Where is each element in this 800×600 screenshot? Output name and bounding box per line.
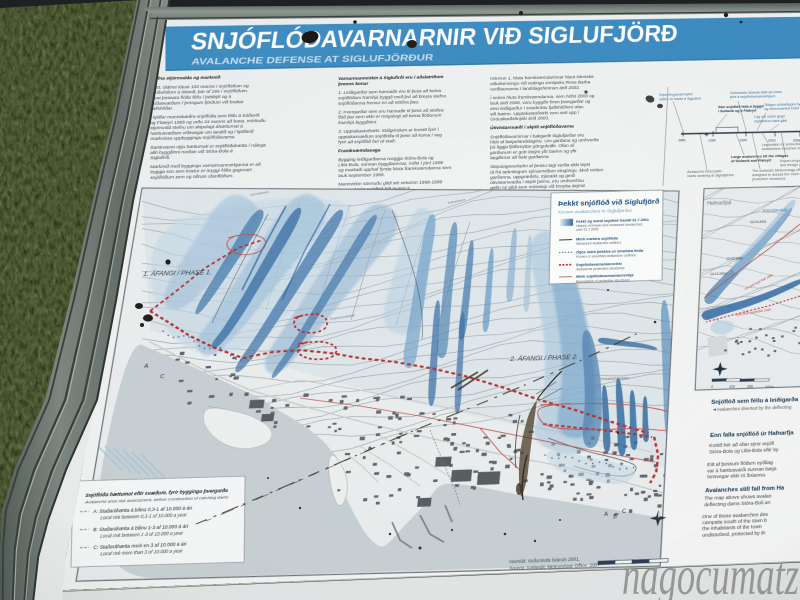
svg-text:of Súðavík and Flateyri: of Súðavík and Flateyri	[731, 158, 771, 164]
svg-text:þörf á snjóflóðamannvirkjum: þörf á snjóflóðamannvirkjum	[730, 94, 776, 100]
svg-text:Hafnarfjall: Hafnarfjall	[707, 201, 731, 207]
svg-text:og hönnunarferli hefst: og hönnunarferli hefst	[764, 107, 799, 111]
svg-text:02.04.2001: 02.04.2001	[750, 220, 767, 224]
svg-text:avalanches becomes effectiv: avalanches becomes effectiv	[762, 146, 800, 151]
svg-text:ráðinn til starfa á Siglufirði: ráðinn til starfa á Siglufirði	[659, 96, 701, 101]
svg-text:and design phas: and design phas	[780, 163, 800, 167]
svg-text:protection measures: protection measures	[752, 177, 786, 182]
svg-text:fjallshlíðar.: fjallshlíðar.	[150, 105, 174, 111]
svg-text:✳: ✳	[704, 132, 710, 139]
svg-text:Framkvæmdasaga: Framkvæmdasaga	[338, 148, 382, 154]
svg-text:Siglufirði.: Siglufirði.	[150, 154, 171, 160]
svg-text:until 31.7.2001: until 31.7.2001	[576, 228, 599, 233]
svg-text:Jörundarskál: Jörundarskál	[762, 207, 787, 212]
svg-text:14.10.2004: 14.10.2004	[710, 272, 727, 276]
svg-text:1881: 1881	[678, 138, 686, 142]
svg-text:snjóflóðum taka gildi: snjóflóðum taka gildi	[754, 118, 787, 123]
svg-text:2003: 2003	[768, 138, 776, 142]
svg-text:12.02.1999: 12.02.1999	[726, 257, 743, 261]
svg-text:1999: 1999	[739, 138, 747, 142]
svg-text:Gróuskarðshnjúkur: Gróuskarðshnjúkur	[600, 375, 630, 381]
svg-text:Gróuskarðshnjúki árið 2003.: Gróuskarðshnjúki árið 2003.	[490, 115, 550, 122]
svg-text:B: B	[613, 513, 617, 520]
svg-text:framhjá byggðinni.: framhjá byggðinni.	[338, 119, 378, 125]
svg-text:í Súðavík og á Flateyri: í Súðavík og á Flateyri	[718, 108, 757, 113]
svg-text:1995: 1995	[708, 138, 716, 142]
svg-text:þrenns konar: þrenns konar	[338, 81, 369, 86]
